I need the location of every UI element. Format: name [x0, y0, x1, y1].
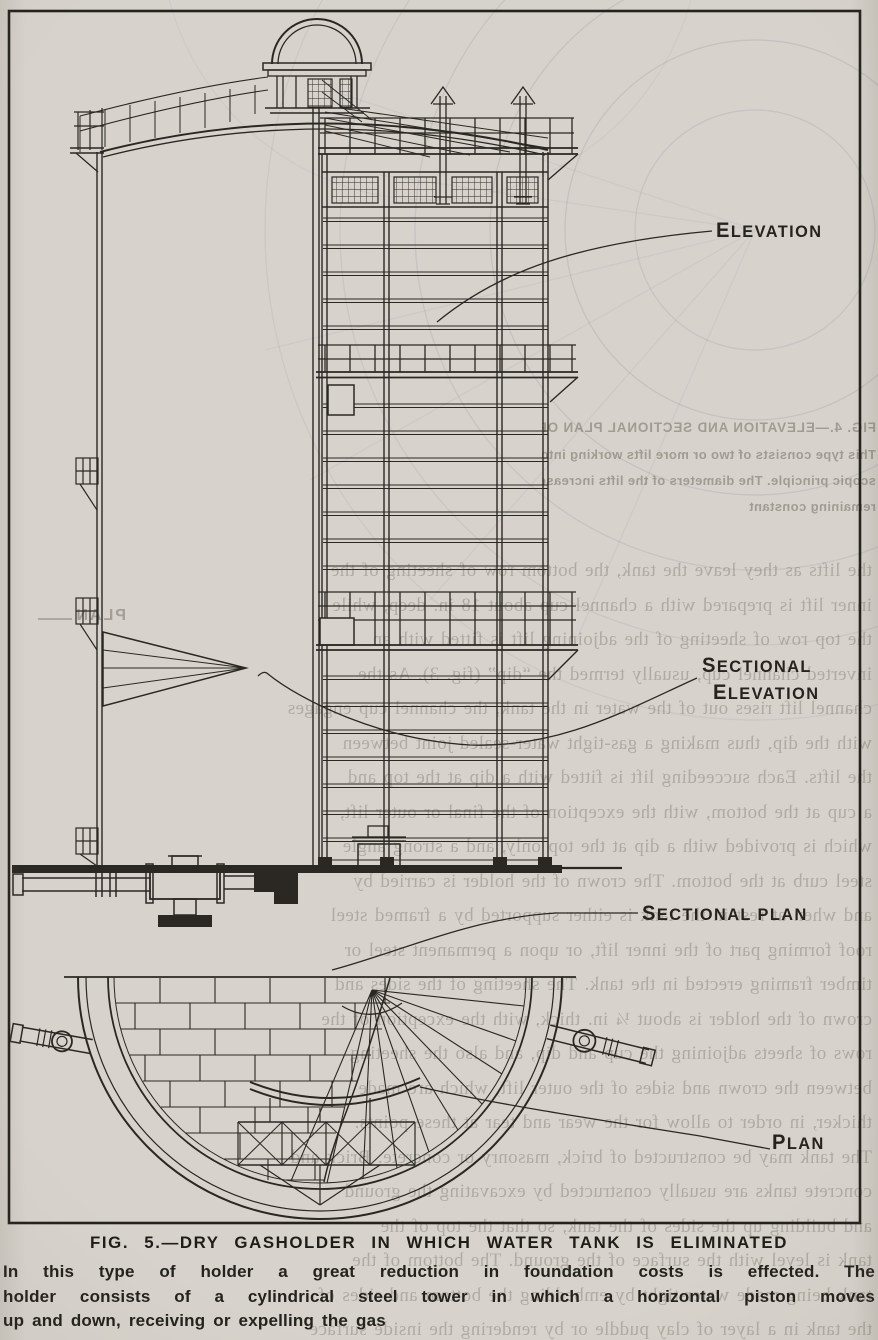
lower-platform: [316, 592, 578, 680]
shell-bands: [323, 218, 548, 860]
ground-line: [12, 857, 622, 873]
tower-drawing: [10, 19, 770, 1219]
caption-line: In this type of holder a great reduction…: [3, 1260, 875, 1285]
figure-caption-title: FIG. 5.—DRY GASHOLDER IN WHICH WATER TAN…: [14, 1233, 863, 1253]
sectional-plan-courses: [116, 978, 390, 1182]
label-sectional: SECTIONAL: [702, 654, 812, 678]
caption-line: holder consists of a cylindrical steel t…: [3, 1285, 875, 1310]
plan-valve-left: [10, 1023, 93, 1057]
label-leader-lines: [258, 231, 770, 1149]
top-platform: [318, 118, 578, 180]
scanned-book-page: FIG. 4.—ELEVATION AND SECTIONAL PLAN OF …: [0, 0, 878, 1340]
plan-centre-truss: [238, 1078, 420, 1205]
figure-caption-body: In this type of holder a great reduction…: [3, 1260, 875, 1334]
plan-valve-right: [546, 1021, 656, 1068]
left-truss: [103, 632, 246, 706]
plan-semicircle: [10, 977, 656, 1219]
label-elevation: ELEVATION: [716, 219, 823, 243]
label-sectional-plan: SECTIONAL PLAN: [642, 902, 808, 926]
label-sectional-elevation: ELEVATION: [713, 681, 820, 705]
louvre-band: [322, 172, 548, 207]
left-wall-landing: [70, 108, 104, 172]
caption-line: up and down, receiving or expelling the …: [3, 1309, 875, 1334]
label-plan: PLAN: [772, 1131, 825, 1155]
cupola-dome: [263, 19, 372, 122]
left-wall-brackets: [76, 458, 98, 866]
